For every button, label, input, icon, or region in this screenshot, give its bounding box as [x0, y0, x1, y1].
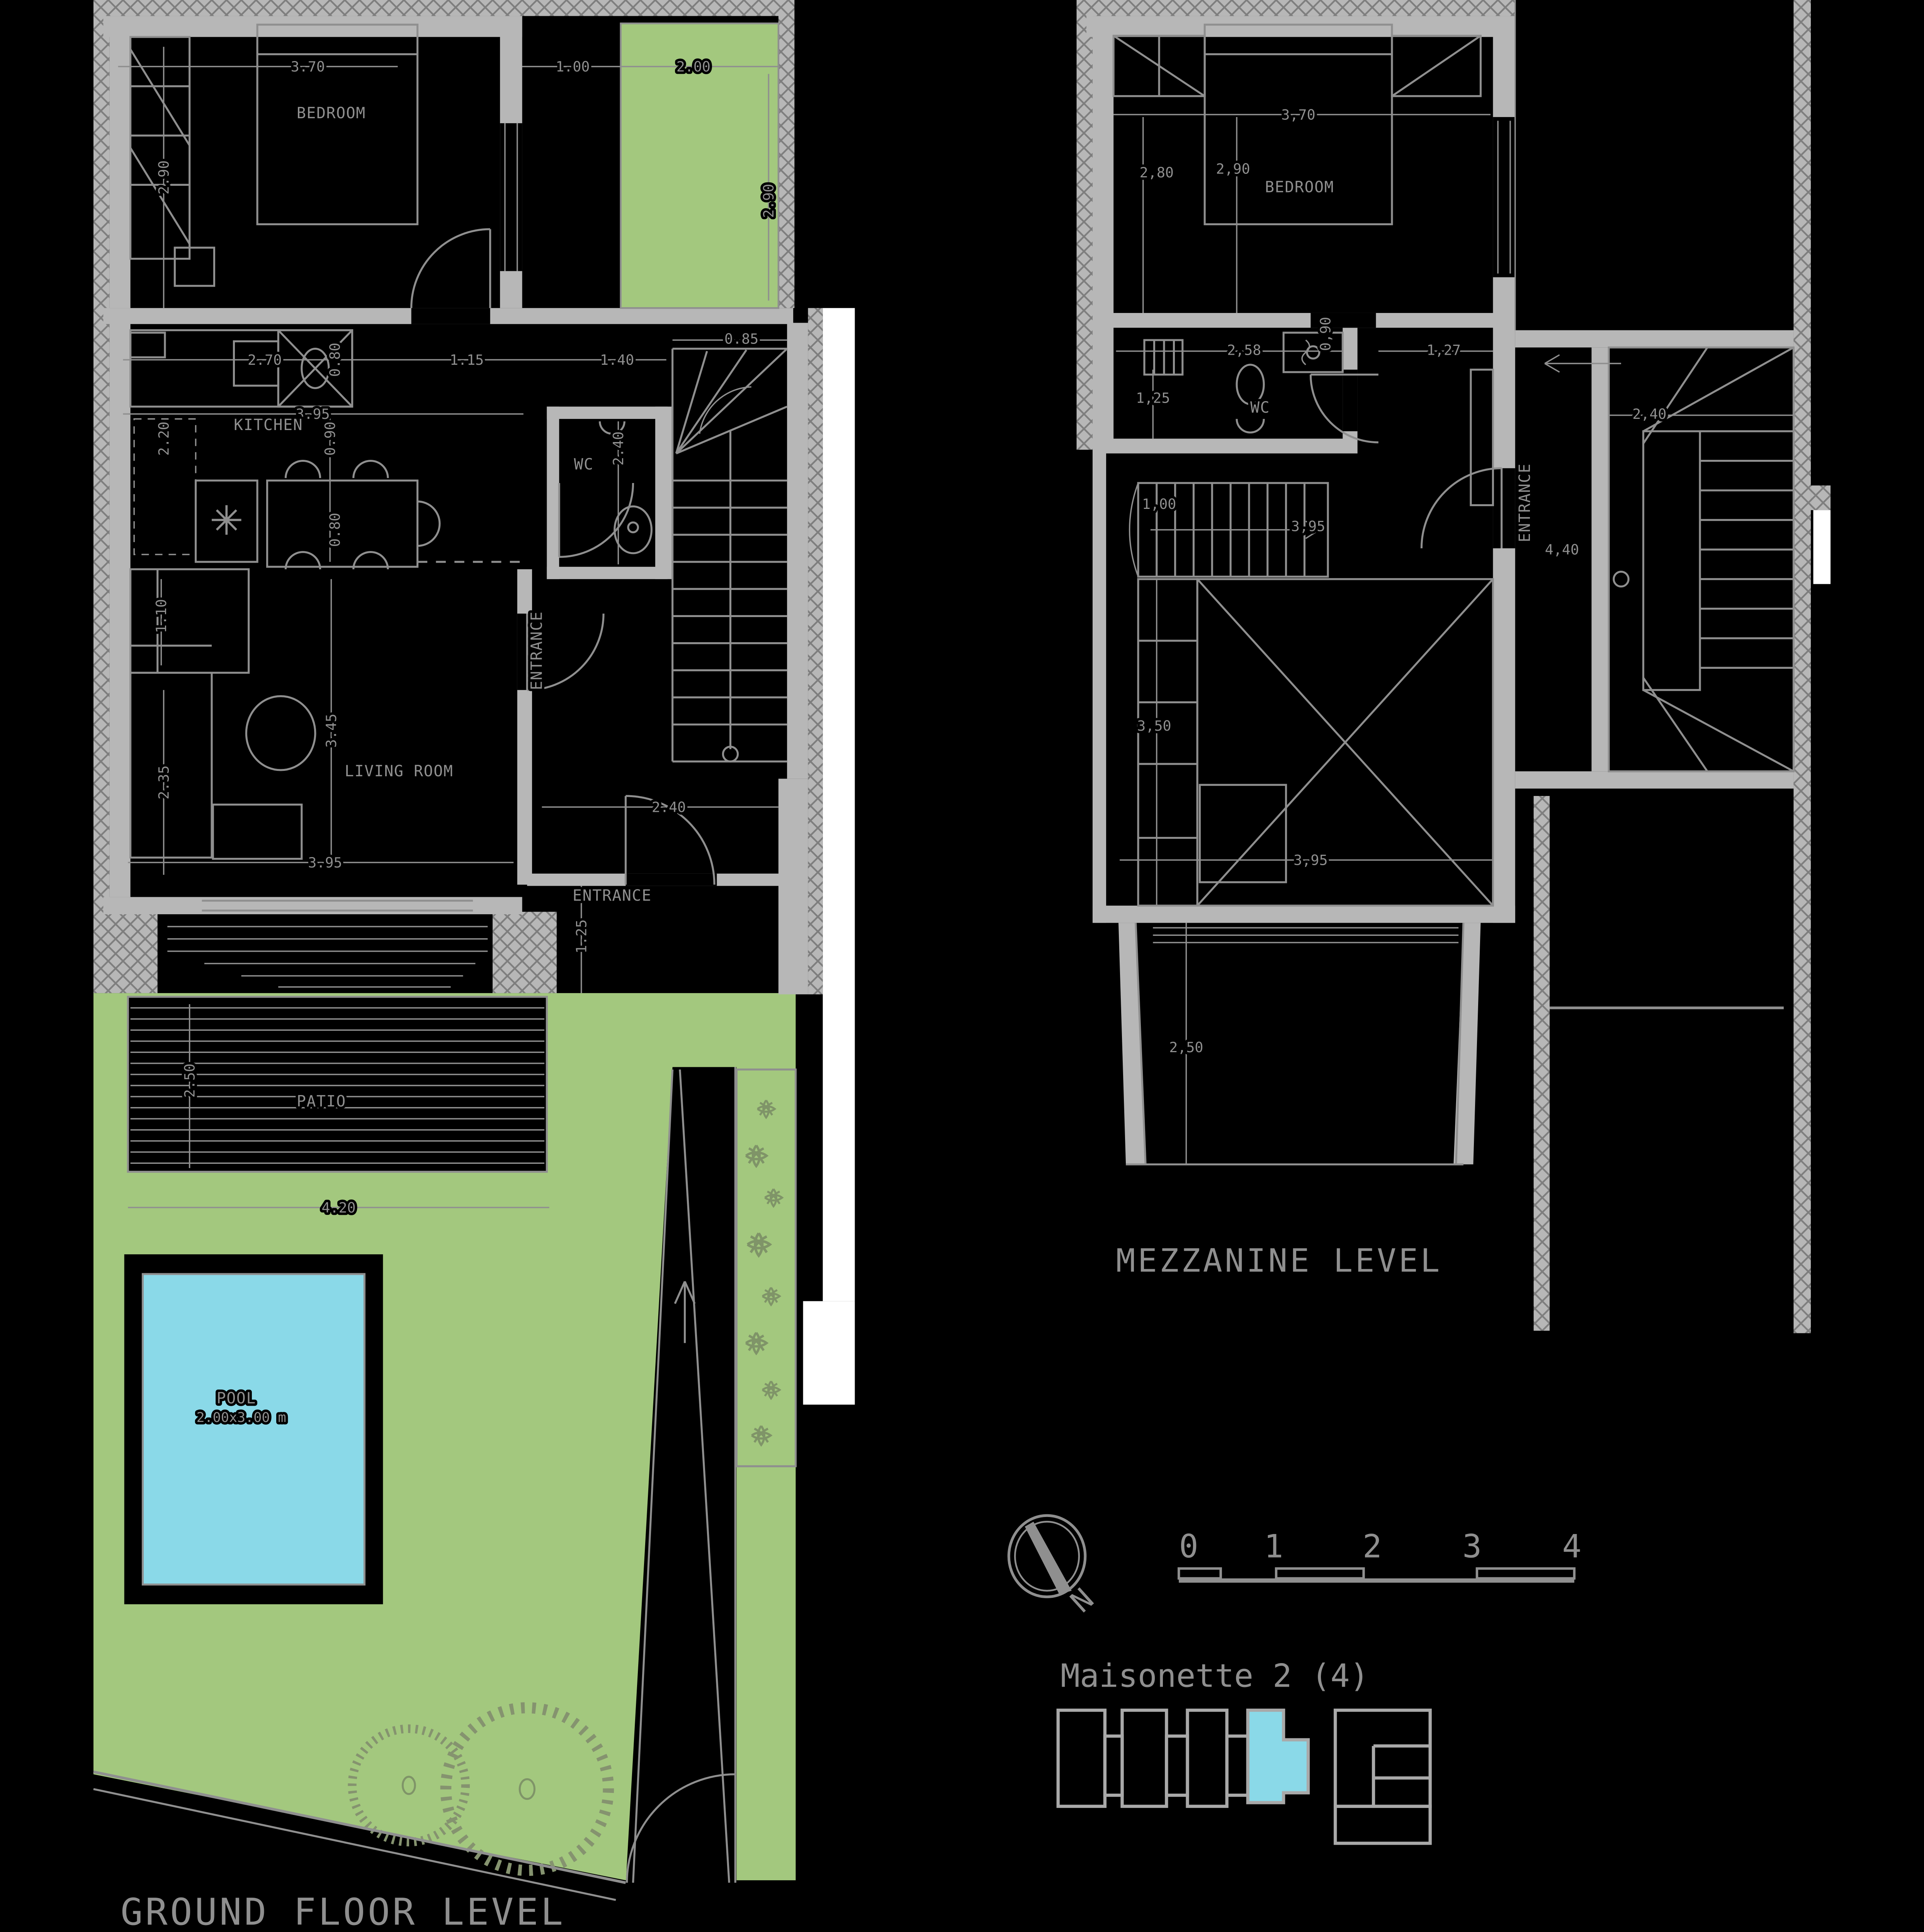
scale-bar: 0 1 2 3 4: [1179, 1528, 1581, 1583]
dim-label: 2.40: [652, 799, 686, 815]
exterior-block: [803, 1301, 855, 1405]
pool: [124, 1254, 383, 1604]
dim-label: 3.70: [291, 58, 325, 75]
dim-label: 1.40: [600, 352, 634, 368]
dim-label: 4,40: [1545, 541, 1579, 558]
svg-text:3: 3: [1462, 1528, 1482, 1565]
patio-label: PATIO: [297, 1093, 346, 1111]
dim-label: 2,40: [1632, 406, 1666, 422]
dim-label: 1.00: [556, 58, 590, 75]
ground-floor-plan: 3.70 2.90 1.00 2.00 2.90 2.70 0.80 1.15 …: [93, 0, 855, 1932]
exterior-wall-hatch: [103, 0, 793, 16]
svg-text:4: 4: [1562, 1528, 1581, 1565]
wc-fixtures: [559, 422, 651, 557]
north-arrow-icon: N: [1009, 1515, 1100, 1619]
dim-label: 0.80: [327, 513, 343, 547]
dim-label: 2,80: [1140, 164, 1174, 181]
dim-label: 0.90: [322, 422, 338, 456]
bedroom-label: BEDROOM: [297, 104, 366, 122]
svg-text:2: 2: [1363, 1528, 1382, 1565]
dim-label: 2.40: [610, 432, 627, 466]
dim-label: 2.00: [676, 58, 710, 75]
dim-label: 2.35: [155, 765, 172, 799]
wc-label: WC: [574, 456, 593, 473]
dim-label: 2.90: [155, 160, 172, 194]
svg-text:1: 1: [1264, 1528, 1283, 1565]
staircase: [673, 349, 787, 761]
exterior-strip: [823, 308, 855, 1301]
floorplan-drawing: 3.70 2.90 1.00 2.00 2.90 2.70 0.80 1.15 …: [0, 0, 1924, 1932]
dim-label: 2.50: [181, 1063, 198, 1097]
dim-label: 1,00: [1142, 496, 1176, 512]
dim-label: 2.70: [248, 352, 282, 368]
bedroom-label: BEDROOM: [1265, 178, 1334, 196]
dim-label: 2,58: [1227, 342, 1261, 358]
dim-label: 0.85: [724, 331, 758, 347]
dim-label: 1.15: [450, 352, 484, 368]
exterior-wall-hatch: [1086, 0, 1515, 16]
building-footprint: [1058, 1710, 1430, 1843]
dim-label: 1.10: [153, 599, 170, 633]
patio-steps: [167, 927, 488, 987]
living-room-label: LIVING ROOM: [345, 762, 453, 780]
dim-label: 3,70: [1281, 106, 1315, 123]
dim-label: 2.90: [760, 184, 777, 218]
dim-label: 1.25: [573, 919, 590, 953]
dim-label: 2.20: [155, 422, 172, 456]
svg-text:0: 0: [1179, 1528, 1198, 1565]
kitchen-label: KITCHEN: [234, 416, 303, 434]
unit-label: Maisonette 2 (4): [1061, 1657, 1369, 1694]
communal-staircase: [1545, 347, 1793, 1008]
dim-label: 0.80: [327, 343, 343, 377]
entrance-label: ENTRANCE: [1516, 463, 1534, 543]
dim-label: 3,50: [1137, 718, 1171, 734]
pool-label: POOL: [217, 1389, 256, 1407]
walls: [1086, 16, 1793, 923]
dim-label: 2,90: [1216, 161, 1250, 177]
dim-label: 1,25: [1136, 390, 1170, 406]
highlighted-unit: [1248, 1710, 1308, 1803]
living-room-furniture: [131, 569, 473, 910]
pool-size-label: 2.00x3.00 m: [196, 1410, 286, 1425]
dim-label: 3.45: [323, 714, 340, 748]
dim-label: 4.20: [321, 1199, 355, 1216]
unit-entrance-door: [1421, 468, 1501, 548]
entrance-label: ENTRANCE: [528, 611, 546, 690]
ground-floor-title: GROUND FLOOR LEVEL: [121, 1890, 565, 1932]
planting-strip: [736, 1070, 795, 1466]
wc-fixtures: [1144, 333, 1493, 505]
dim-label: 3,95: [1293, 852, 1327, 869]
dim-label: 1,27: [1427, 342, 1461, 358]
mezzanine-plan: 3,70 2,80 2,90 2,58 0,90 1,27 1,25 2,40 …: [1077, 0, 1831, 1333]
dim-label: 0,90: [1317, 317, 1334, 351]
wc-label: WC: [1250, 399, 1270, 417]
dim-label: 3,95: [1291, 518, 1325, 534]
dim-label: 3.95: [308, 854, 342, 871]
key-plan: N 0 1 2 3 4 Maisonette 2 (4): [1009, 1515, 1581, 1843]
entrance-label: ENTRANCE: [573, 887, 652, 905]
mezzanine-title: MEZZANINE LEVEL: [1116, 1242, 1442, 1279]
dim-label: 2,50: [1169, 1039, 1203, 1056]
